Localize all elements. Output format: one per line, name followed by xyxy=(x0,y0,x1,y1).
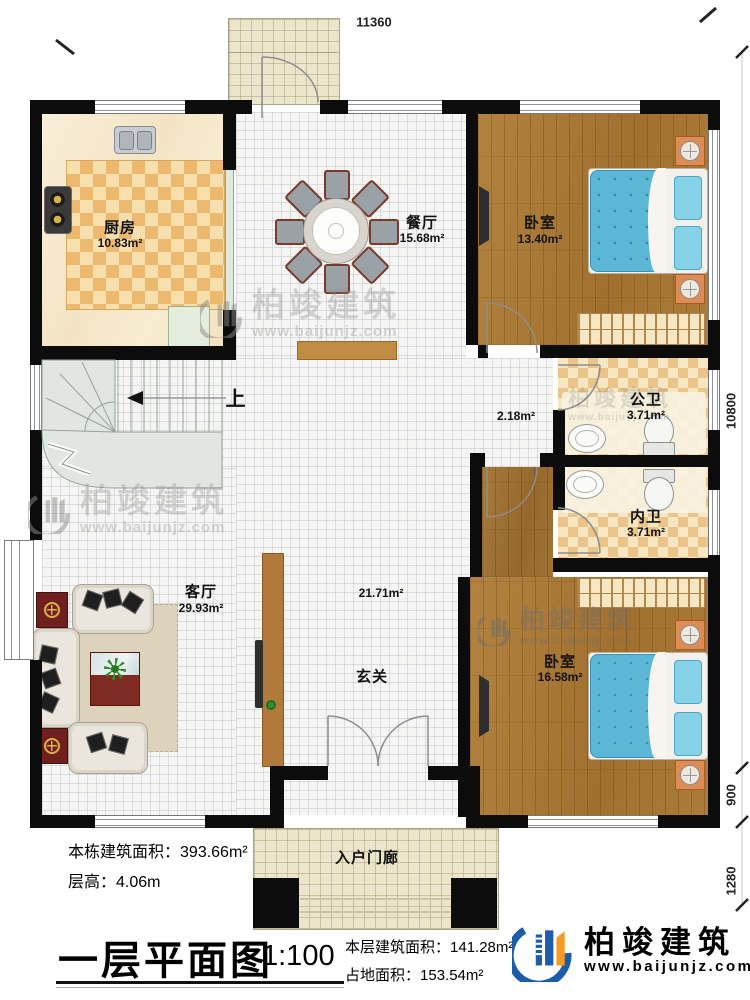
nightstand-lamp xyxy=(680,765,700,785)
wall-segment xyxy=(30,100,42,365)
sink-basin xyxy=(575,430,599,447)
bedroom2-corridor-floor xyxy=(482,467,553,577)
room-label-kitchen: 厨房 xyxy=(104,217,136,238)
bed-blanket-fold xyxy=(648,168,666,272)
wall-segment xyxy=(320,100,348,114)
wall-segment xyxy=(708,555,720,815)
public-bath-toilet-tank xyxy=(643,442,675,456)
dimension-right-lower: 1280 xyxy=(724,867,739,896)
kitchen-stove xyxy=(44,186,72,234)
title-underline-thick xyxy=(56,981,344,984)
window xyxy=(348,100,442,114)
wall-segment xyxy=(540,345,720,358)
wall-segment xyxy=(458,577,470,817)
wall-segment xyxy=(553,410,565,455)
wall-segment xyxy=(223,112,236,170)
room-area-inner-bath: 3.71m² xyxy=(627,525,665,539)
inner-bath-sink xyxy=(566,470,604,499)
bed-pillow xyxy=(674,712,702,756)
kitchen-rug xyxy=(66,160,225,310)
room-label-bedroom2: 卧室 xyxy=(544,651,576,672)
stove-burner-2 xyxy=(50,212,65,227)
wall-segment xyxy=(658,815,720,828)
nightstand xyxy=(675,620,705,650)
stat-label: 占地面积： xyxy=(345,967,420,984)
room-area-bedroom2: 16.58m² xyxy=(538,670,583,684)
kitchen-sink xyxy=(114,126,156,154)
stove-burner-1 xyxy=(50,192,65,207)
bedroom2-tv xyxy=(479,675,489,737)
sink-basin xyxy=(573,476,597,493)
stat-building-total: 本栋建筑面积：393.66m² xyxy=(68,838,248,862)
stat-value: 393.66m² xyxy=(180,844,248,861)
bay-window xyxy=(4,540,34,660)
dining-table-center xyxy=(328,223,344,239)
wardrobe-bedroom2 xyxy=(577,578,705,608)
window xyxy=(520,100,640,114)
wardrobe-bedroom1 xyxy=(577,313,705,345)
wall-segment xyxy=(30,815,95,828)
dining-chair xyxy=(275,219,305,245)
room-label-inner-bath: 内卫 xyxy=(630,506,662,527)
wall-segment xyxy=(442,100,520,114)
brand-url: www.baijunjz.com xyxy=(584,958,750,975)
public-bath-sink xyxy=(568,424,606,453)
stat-label: 本栋建筑面积： xyxy=(68,844,180,861)
window xyxy=(30,365,42,430)
tv-cabinet xyxy=(262,553,284,767)
window xyxy=(95,815,205,828)
wall-segment xyxy=(270,766,284,828)
room-area-dining: 15.68m² xyxy=(400,231,445,245)
sink-basin-left xyxy=(119,131,134,150)
side-table-top xyxy=(36,592,68,628)
dining-chair xyxy=(324,264,350,294)
wall-segment xyxy=(30,430,42,540)
stat-label: 本层建筑面积： xyxy=(345,939,450,956)
wall-segment xyxy=(30,660,42,815)
wall-segment xyxy=(466,112,478,345)
stat-value: 141.28m² xyxy=(450,939,513,956)
porch-step-line-1 xyxy=(300,898,450,900)
nightstand xyxy=(675,136,705,166)
stairs-up-label: 上 xyxy=(226,383,247,412)
porch-pillar xyxy=(253,878,299,928)
stat-label: 层高： xyxy=(68,874,116,891)
plan-scale: 1:100 xyxy=(262,940,335,973)
window xyxy=(708,130,720,320)
porch-pillar xyxy=(451,878,497,928)
sink-basin-right xyxy=(137,131,152,150)
nightstand xyxy=(675,760,705,790)
tv-screen xyxy=(255,640,263,708)
room-label-living: 客厅 xyxy=(185,581,217,602)
nightstand-lamp xyxy=(680,141,700,161)
wall-segment xyxy=(708,430,720,490)
window xyxy=(95,100,185,114)
room-label-dining: 餐厅 xyxy=(406,212,438,233)
kitchen-sliding-door xyxy=(225,170,234,310)
brand-logo-icon xyxy=(512,920,574,982)
dimension-right-upper: 900 xyxy=(724,784,739,806)
stat-land-area: 占地面积：153.54m² xyxy=(345,964,483,985)
dimension-right-total: 10800 xyxy=(724,393,739,429)
room-label-foyer: 玄关 xyxy=(356,666,388,687)
top-porch-step-line xyxy=(229,52,337,53)
stat-value: 153.54m² xyxy=(420,967,483,984)
floor-plan-page: 柏竣建筑 www.baijunjz.com 柏竣建筑 www.baijunjz.… xyxy=(0,0,750,1000)
stat-value: 4.06m xyxy=(116,874,160,891)
room-area-foyer: 21.71m² xyxy=(359,586,404,600)
room-label-public-bath: 公卫 xyxy=(630,389,662,410)
bed-pillow xyxy=(674,226,702,270)
room-label-entry-porch: 入户门廊 xyxy=(335,847,399,868)
bed-pillow xyxy=(674,176,702,220)
nightstand xyxy=(675,274,705,304)
stat-floor-area: 本层建筑面积：141.28m² xyxy=(345,936,513,957)
window xyxy=(708,370,720,430)
wall-segment xyxy=(480,815,528,828)
bedroom1-tv xyxy=(479,186,489,246)
bed-pillow xyxy=(674,660,702,704)
plan-title: 一层平面图 xyxy=(58,928,273,986)
dining-console xyxy=(297,341,397,360)
wall-segment xyxy=(553,467,565,510)
dimension-top: 11360 xyxy=(356,15,391,30)
wall-segment xyxy=(478,345,488,358)
title-underline-thin xyxy=(56,987,344,988)
nightstand-lamp xyxy=(680,279,700,299)
dining-chair xyxy=(324,170,350,200)
bed-blanket-fold xyxy=(648,652,666,758)
brand-logo: 柏竣建筑 www.baijunjz.com xyxy=(512,920,750,982)
brand-name: 柏竣建筑 xyxy=(584,927,750,958)
wall-segment xyxy=(708,100,720,130)
window xyxy=(708,490,720,555)
coffee-table xyxy=(90,652,140,706)
porch-step-line-2 xyxy=(300,911,450,913)
dining-chair xyxy=(369,219,399,245)
room-area-living: 29.93m² xyxy=(179,601,224,615)
stat-floor-height: 层高：4.06m xyxy=(68,868,160,892)
plant xyxy=(104,658,126,680)
room-area-public-bath: 3.71m² xyxy=(627,408,665,422)
room-area-bedroom1: 13.40m² xyxy=(518,232,563,246)
wall-segment xyxy=(30,346,225,360)
room-area-kitchen: 10.83m² xyxy=(98,236,143,250)
wall-segment xyxy=(470,453,482,577)
wall-segment xyxy=(185,100,252,114)
tv-plant xyxy=(266,700,276,710)
wall-segment xyxy=(540,453,553,467)
room-area-hall: 2.18m² xyxy=(497,409,535,423)
side-table-inlay xyxy=(44,738,60,754)
top-porch-floor xyxy=(228,18,340,105)
nightstand-lamp xyxy=(680,625,700,645)
wall-segment xyxy=(553,455,708,467)
wall-segment xyxy=(553,558,708,572)
room-label-bedroom1: 卧室 xyxy=(524,212,556,233)
window xyxy=(528,815,658,828)
side-table-inlay xyxy=(44,602,60,618)
